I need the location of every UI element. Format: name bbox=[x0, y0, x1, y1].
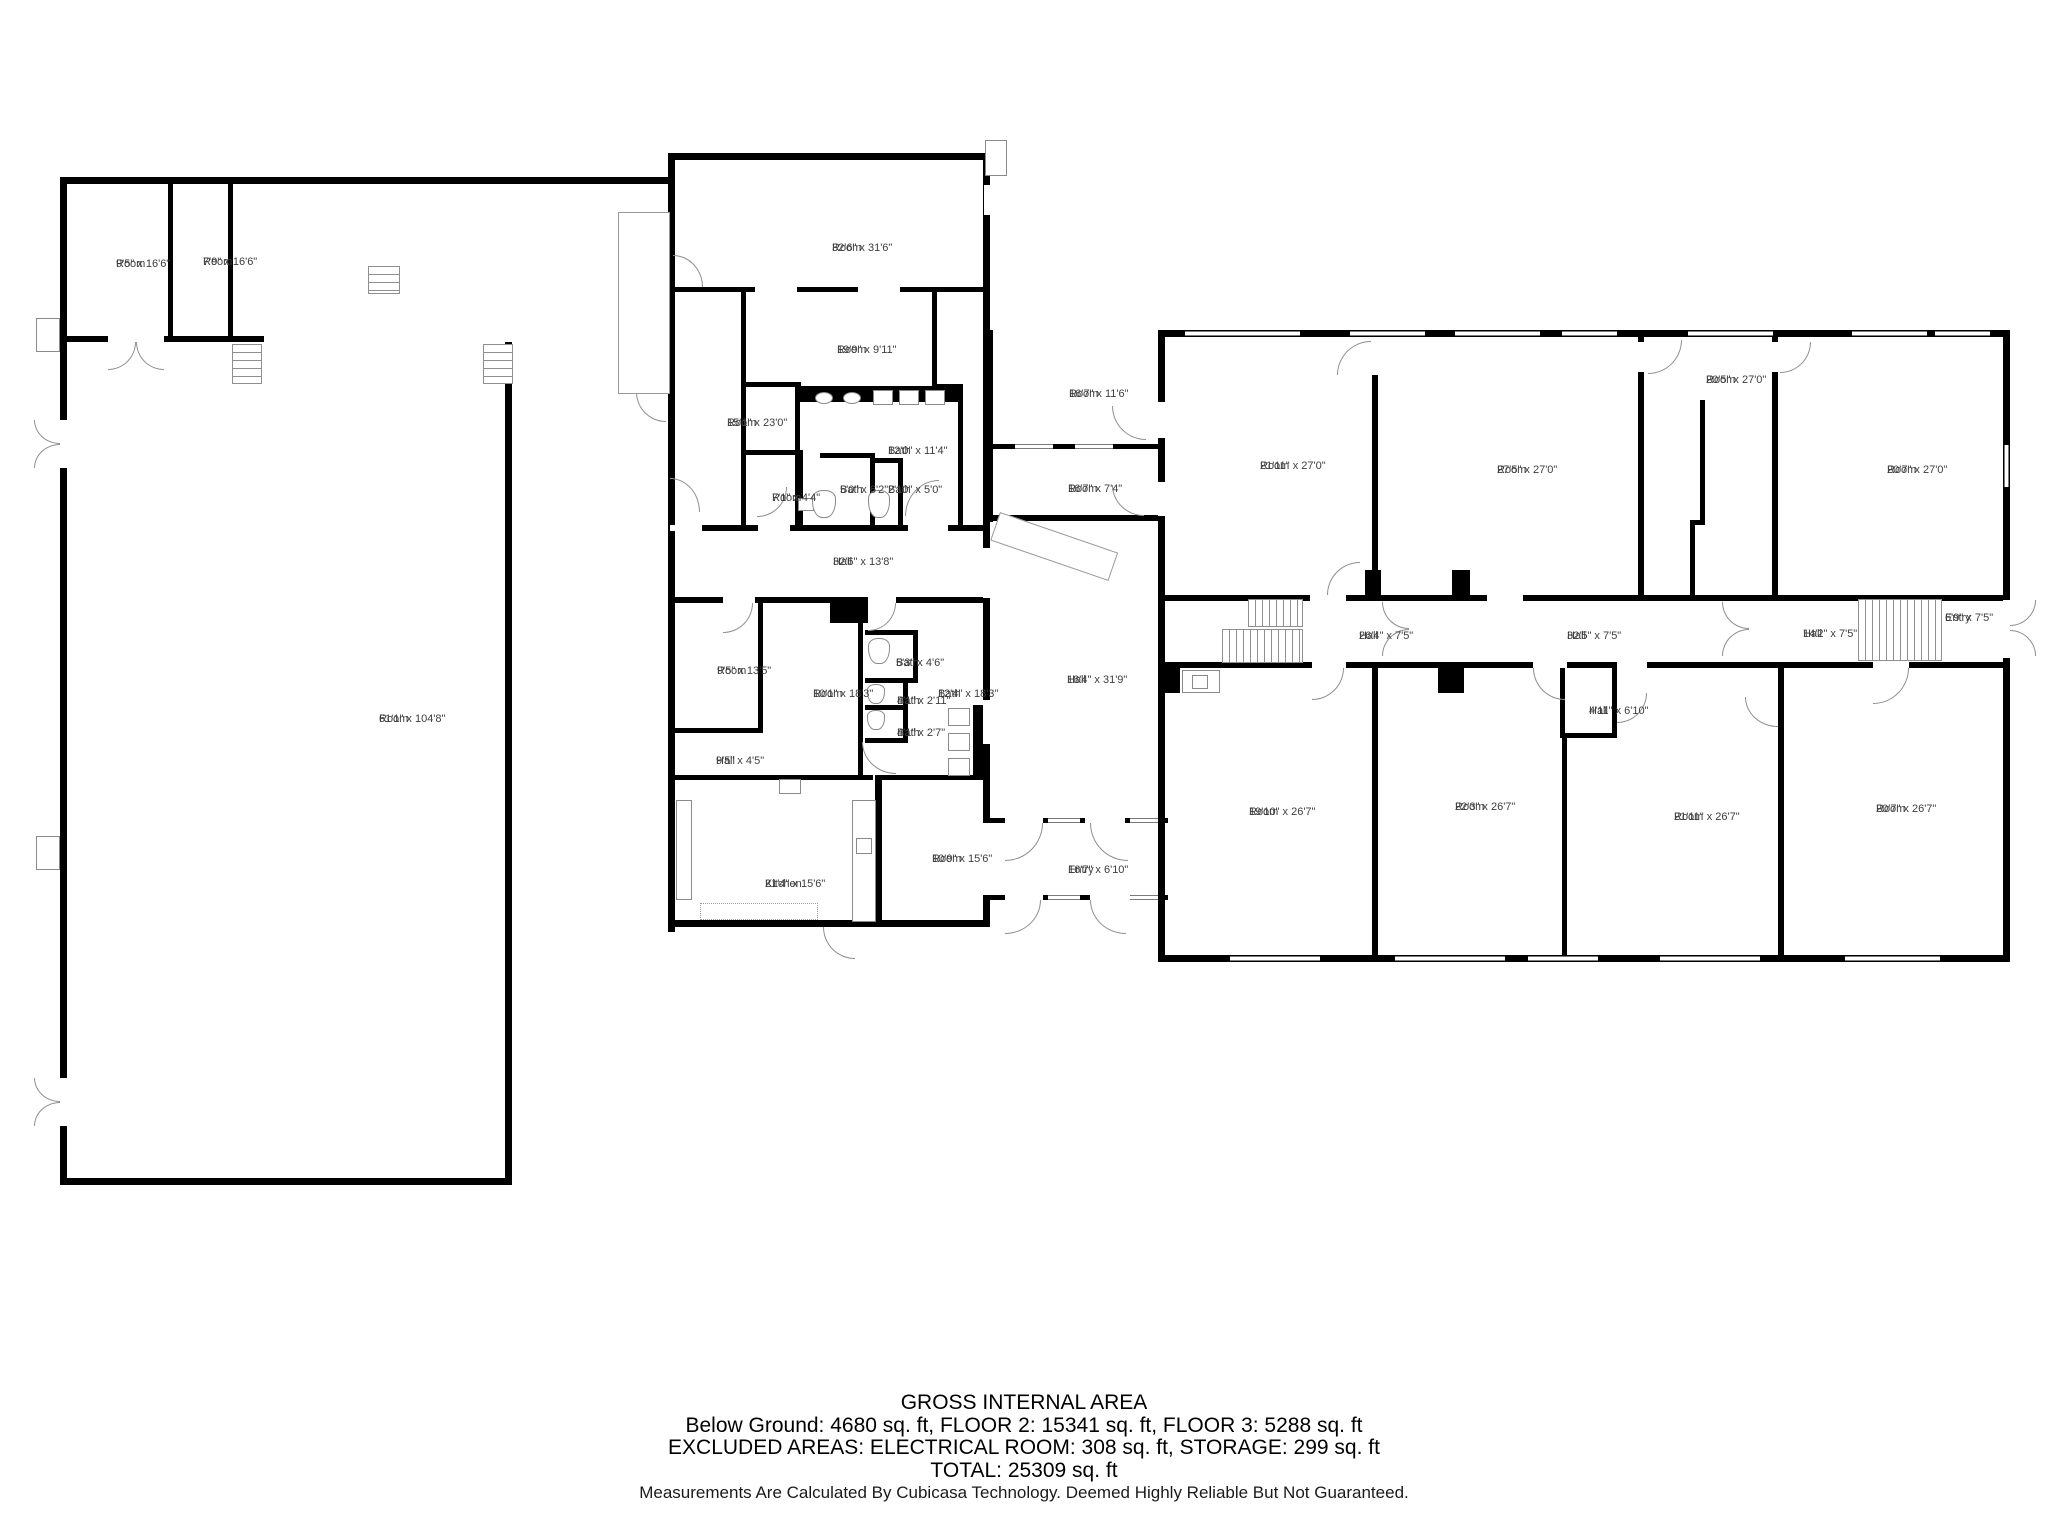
wall bbox=[875, 775, 882, 925]
wall bbox=[758, 597, 763, 730]
room-dimensions: 32'6" x 13'8" bbox=[833, 556, 893, 569]
window bbox=[36, 836, 60, 870]
door-arc bbox=[1722, 602, 1749, 629]
wall bbox=[1690, 520, 1695, 600]
summary-title: GROSS INTERNAL AREA bbox=[0, 1392, 2048, 1415]
wall bbox=[932, 287, 937, 387]
stairs bbox=[483, 344, 513, 384]
room-dimensions: 12'4" x 18'3" bbox=[938, 688, 998, 701]
door-opening bbox=[1310, 595, 1346, 601]
wall bbox=[1160, 662, 1180, 693]
counter bbox=[676, 800, 692, 900]
wall bbox=[60, 177, 668, 184]
room-dimensions: 18'4" x 31'9" bbox=[1067, 674, 1127, 687]
room-dimensions: 4'1" x 2'7" bbox=[897, 727, 945, 740]
window bbox=[1130, 895, 1158, 900]
door-arc bbox=[108, 342, 136, 370]
door-arc bbox=[34, 420, 60, 444]
door-opening bbox=[1487, 595, 1523, 601]
door-arc bbox=[1337, 341, 1371, 375]
wall bbox=[1562, 738, 1567, 958]
wall bbox=[1700, 400, 1705, 524]
ramp bbox=[990, 512, 1118, 581]
wall bbox=[1560, 733, 1617, 738]
wall bbox=[60, 336, 108, 342]
door-opening bbox=[983, 548, 990, 598]
door-arc bbox=[2010, 600, 2036, 626]
stairs bbox=[368, 266, 400, 294]
wall bbox=[668, 728, 763, 733]
wall bbox=[958, 384, 963, 530]
toilet-icon bbox=[867, 710, 885, 730]
door-opening bbox=[758, 525, 790, 531]
stairs bbox=[1858, 599, 1942, 661]
counter bbox=[852, 800, 876, 922]
room-dimensions: 9'5" x 4'5" bbox=[716, 755, 764, 768]
wall bbox=[870, 458, 900, 463]
door-opening bbox=[1617, 662, 1647, 668]
wall bbox=[60, 1178, 512, 1185]
room-dimensions: 27'5" x 27'0" bbox=[1497, 464, 1557, 477]
room-dimensions: 19'10" x 26'7" bbox=[1249, 806, 1315, 819]
sink-icon bbox=[948, 758, 970, 776]
window bbox=[36, 318, 60, 352]
wall bbox=[1778, 668, 1784, 958]
door-opening bbox=[755, 287, 797, 292]
window bbox=[1395, 956, 1505, 961]
window bbox=[1455, 331, 1540, 336]
room-dimensions: 7'1" x 4'4" bbox=[772, 492, 820, 505]
wall bbox=[1638, 337, 1644, 342]
door-arc bbox=[1112, 406, 1146, 440]
wall bbox=[1452, 570, 1470, 601]
door-opening bbox=[908, 525, 948, 531]
sink-icon bbox=[843, 392, 861, 404]
window bbox=[1048, 818, 1080, 823]
window bbox=[1528, 956, 1598, 961]
window bbox=[985, 140, 1007, 176]
door-arc bbox=[673, 255, 703, 287]
wall bbox=[820, 453, 875, 458]
sink-icon bbox=[856, 838, 872, 854]
wall bbox=[60, 177, 67, 1185]
room-dimensions: 4'11" x 6'10" bbox=[1589, 705, 1649, 718]
stairs bbox=[232, 344, 262, 384]
summary-total: TOTAL: 25309 sq. ft bbox=[0, 1460, 2048, 1483]
window bbox=[1048, 895, 1080, 900]
room-dimensions: 19'9" x 9'11" bbox=[837, 344, 897, 357]
window bbox=[1852, 331, 1927, 336]
wall bbox=[741, 287, 746, 525]
wall bbox=[1372, 668, 1378, 958]
door-arc bbox=[823, 927, 855, 959]
window bbox=[1562, 331, 1617, 336]
sink-icon bbox=[948, 708, 970, 726]
sink-icon bbox=[925, 390, 945, 405]
room-dimensions: 5'0" x 6'2" bbox=[840, 484, 888, 497]
door-arc bbox=[1382, 602, 1409, 629]
door-opening bbox=[983, 700, 990, 744]
door-arc bbox=[723, 603, 753, 633]
wall bbox=[1638, 372, 1644, 600]
room-dimensions: 20'5" x 27'0" bbox=[1706, 374, 1766, 387]
door-arc bbox=[636, 392, 666, 422]
window bbox=[1350, 331, 1425, 336]
door-arc bbox=[1005, 900, 1041, 934]
room-dimensions: 9'5" x 16'6" bbox=[116, 258, 170, 271]
room-dimensions: 20'7" x 26'7" bbox=[1876, 803, 1936, 816]
door-opening bbox=[858, 287, 900, 292]
wall bbox=[505, 342, 512, 1185]
wall bbox=[164, 336, 264, 342]
door-arc bbox=[1873, 668, 1909, 704]
window bbox=[1660, 956, 1760, 961]
door-opening bbox=[2003, 600, 2010, 658]
wall bbox=[668, 597, 990, 603]
door-arc bbox=[1722, 629, 1749, 656]
wall bbox=[865, 678, 918, 683]
summary-excluded: EXCLUDED AREAS: ELECTRICAL ROOM: 308 sq.… bbox=[0, 1437, 2048, 1460]
room-dimensions: 21'11" x 27'0" bbox=[1260, 460, 1326, 473]
room-dimensions: 16'7" x 6'10" bbox=[1068, 864, 1128, 877]
floor-plan: Room9'5" x 16'6"Room7'9" x 16'6"Room61'1… bbox=[0, 0, 2048, 1536]
window bbox=[1845, 956, 1940, 961]
room-dimensions: 2'10" x 5'0" bbox=[888, 484, 942, 497]
window bbox=[2004, 445, 2009, 487]
room-dimensions: 9'5" x 13'5" bbox=[717, 665, 771, 678]
room-dimensions: 16'7" x 11'6" bbox=[1069, 388, 1129, 401]
wall bbox=[741, 382, 801, 387]
door-arc bbox=[1648, 340, 1682, 374]
door-arc bbox=[34, 1078, 60, 1102]
summary-disclaimer: Measurements Are Calculated By Cubicasa … bbox=[0, 1482, 2048, 1504]
door-arc bbox=[1005, 823, 1043, 861]
window bbox=[1015, 444, 1053, 449]
room-dimensions: 32'5" x 7'5" bbox=[1567, 630, 1621, 643]
room-dimensions: 12'0" x 11'4" bbox=[888, 445, 948, 458]
wall bbox=[987, 330, 993, 522]
window bbox=[1230, 956, 1320, 961]
door-arc bbox=[1090, 823, 1128, 861]
room-dimensions: 16'7" x 7'4" bbox=[1068, 483, 1122, 496]
door-arc bbox=[1312, 668, 1344, 700]
room-dimensions: 14'2" x 7'5" bbox=[1803, 628, 1857, 641]
summary-areas: Below Ground: 4680 sq. ft, FLOOR 2: 1534… bbox=[0, 1415, 2048, 1438]
floorplan-page: Room9'5" x 16'6"Room7'9" x 16'6"Room61'1… bbox=[0, 0, 2048, 1536]
room-dimensions: 32'6" x 31'6" bbox=[832, 242, 892, 255]
window bbox=[1130, 818, 1158, 823]
wall bbox=[741, 450, 803, 455]
wall bbox=[830, 597, 868, 623]
door-arc bbox=[1780, 342, 1811, 373]
room-dimensions: 10'9" x 15'6" bbox=[932, 853, 992, 866]
wall bbox=[668, 153, 990, 160]
wall bbox=[668, 920, 990, 927]
stairs bbox=[1222, 629, 1303, 663]
kitchen-island bbox=[700, 903, 818, 920]
stairwell bbox=[618, 212, 670, 394]
room-dimensions: 10'1" x 18'3" bbox=[813, 688, 873, 701]
door-opening bbox=[670, 525, 702, 531]
room-dimensions: 20'7" x 27'0" bbox=[1887, 464, 1947, 477]
room-dimensions: 15'1" x 23'0" bbox=[727, 417, 787, 430]
sink-icon bbox=[899, 390, 919, 405]
sink-icon bbox=[1192, 675, 1208, 689]
door-arc bbox=[1090, 900, 1126, 934]
wall bbox=[798, 450, 803, 530]
door-opening bbox=[984, 185, 990, 215]
stove-icon bbox=[779, 779, 801, 794]
room-dimensions: 61'1" x 104'8" bbox=[379, 713, 445, 726]
room-dimensions: 6'9" x 7'5" bbox=[1945, 612, 1993, 625]
toilet-icon bbox=[868, 638, 890, 664]
wall bbox=[1438, 662, 1464, 693]
door-opening bbox=[1158, 482, 1165, 516]
window bbox=[1935, 331, 1990, 336]
sink-icon bbox=[948, 733, 970, 751]
room-dimensions: 22'3" x 26'7" bbox=[1455, 801, 1515, 814]
wall bbox=[1365, 570, 1381, 601]
stairs bbox=[1248, 599, 1303, 627]
door-arc bbox=[868, 603, 896, 631]
room-dimensions: 26'4" x 7'5" bbox=[1359, 630, 1413, 643]
door-arc bbox=[1745, 697, 1778, 727]
door-arc bbox=[136, 342, 164, 370]
sink-icon bbox=[873, 390, 893, 405]
room-dimensions: 21'11" x 26'7" bbox=[1674, 811, 1740, 824]
door-arc bbox=[1327, 562, 1360, 595]
door-arc bbox=[34, 1102, 60, 1126]
sink-icon bbox=[815, 392, 833, 404]
wall bbox=[987, 444, 1158, 449]
wall bbox=[1772, 372, 1778, 600]
door-arc bbox=[1533, 668, 1565, 700]
wall bbox=[668, 287, 990, 292]
wall bbox=[913, 630, 918, 682]
room-dimensions: 5'3" x 4'6" bbox=[896, 657, 944, 670]
window bbox=[1688, 331, 1773, 336]
wall bbox=[668, 775, 873, 780]
wall bbox=[983, 895, 990, 927]
door-arc bbox=[670, 478, 700, 512]
door-opening bbox=[1158, 402, 1165, 438]
wall bbox=[1372, 375, 1378, 600]
room-dimensions: 7'9" x 16'6" bbox=[203, 256, 257, 269]
window bbox=[1185, 331, 1300, 336]
room-dimensions: 21'4" x 15'6" bbox=[765, 878, 825, 891]
door-arc bbox=[862, 742, 896, 774]
gross-internal-area-summary: GROSS INTERNAL AREA Below Ground: 4680 s… bbox=[0, 1392, 2048, 1504]
wall bbox=[1772, 337, 1778, 342]
door-arc bbox=[2010, 630, 2036, 656]
door-arc bbox=[34, 444, 60, 468]
window bbox=[1075, 444, 1113, 449]
wall bbox=[865, 630, 918, 635]
